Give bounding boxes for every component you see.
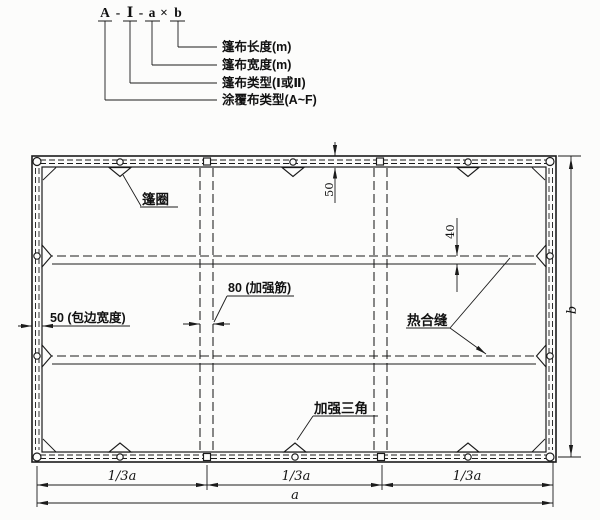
seam-square-icon	[204, 158, 211, 165]
tarp-ring-icon	[117, 454, 123, 460]
seam-square-icon	[204, 454, 211, 461]
corner-grommet-icon	[546, 453, 554, 461]
designation-times-symbol: ×	[160, 5, 168, 20]
annotations: 篷圈 50 40 50 (包边宽度) 80 (加强筋) 热合缝 加强三角	[18, 142, 510, 440]
tarp-ring-icon	[292, 454, 298, 460]
height-dim-value: b	[565, 306, 580, 314]
callout-width-label: 篷布宽度(m)	[222, 57, 291, 72]
reinforcement-triangle-icon	[42, 345, 52, 367]
reinforcement-triangle-icon	[284, 443, 306, 452]
tarp-ring-icon	[34, 253, 40, 259]
seam-overlap-dim-value: 40	[443, 224, 457, 239]
designation-separator: -	[139, 5, 144, 20]
edge-fittings	[33, 158, 554, 462]
designation-separator: -	[116, 5, 121, 20]
third-dim-value: 1/3a	[282, 469, 311, 484]
seam-lines	[44, 168, 544, 452]
corner-grommet-icon	[546, 158, 554, 166]
corner-grommet-icon	[33, 453, 41, 461]
third-dim-value: 1/3a	[108, 469, 137, 484]
length-dim-value: a	[291, 488, 299, 503]
designation-block: A - Ⅰ - a × b 篷布长度(m) 篷布宽度(m) 篷布类型(Ⅰ或Ⅱ) …	[98, 5, 317, 107]
inner-border	[42, 167, 546, 452]
designation-tarp-type: Ⅰ	[127, 5, 133, 20]
designation-length-symbol: b	[174, 5, 182, 20]
callout-type-label: 篷布类型(Ⅰ或Ⅱ)	[222, 75, 306, 90]
tarp-ring-icon	[117, 159, 123, 165]
tarp-ring-icon	[465, 454, 471, 460]
designation-underlines	[98, 21, 217, 100]
triangle-label: 加强三角	[313, 400, 368, 416]
rib-label: 80 (加强筋)	[228, 280, 291, 295]
tarp-ring-icon	[547, 253, 553, 259]
reinforcement-triangle-icon	[109, 443, 131, 452]
reinforcement-triangle-icon	[537, 245, 547, 267]
triangle-leader-line	[297, 416, 378, 440]
tarp-ring-icon	[290, 159, 296, 165]
border-stitch-lines	[36, 160, 553, 459]
reinforcement-triangle-icon	[42, 245, 52, 267]
ring-label: 篷圈	[142, 191, 169, 207]
designation-fabric-type: A	[100, 5, 110, 20]
drawing-canvas: A - Ⅰ - a × b 篷布长度(m) 篷布宽度(m) 篷布类型(Ⅰ或Ⅱ) …	[0, 0, 600, 520]
seam-square-icon	[378, 454, 385, 461]
reinforcement-triangle-icon	[457, 168, 479, 177]
heat-seam-label: 热合缝	[407, 312, 448, 328]
reinforcement-triangle-icon	[109, 168, 131, 177]
tarpaulin-outline	[32, 156, 556, 462]
corner-reinforcement-marks	[43, 168, 545, 453]
tarp-ring-icon	[34, 353, 40, 359]
callout-fabric-label: 涂覆布类型(A~F)	[222, 92, 317, 107]
reinforcement-triangle-icon	[537, 345, 547, 367]
seam-square-icon	[377, 158, 384, 165]
callout-length-label: 篷布长度(m)	[222, 39, 291, 54]
border-width-dim-value: 50	[322, 182, 336, 197]
corner-grommet-icon	[33, 158, 41, 166]
tarpaulin-spec-diagram: A - Ⅰ - a × b 篷布长度(m) 篷布宽度(m) 篷布类型(Ⅰ或Ⅱ) …	[0, 0, 600, 520]
tarp-ring-icon	[547, 353, 553, 359]
hem-width-label: 50 (包边宽度)	[50, 310, 126, 325]
third-dim-value: 1/3a	[453, 469, 482, 484]
reinforcement-triangle-icon	[457, 443, 479, 452]
reinforcement-triangle-icon	[282, 168, 304, 177]
tarp-ring-icon	[465, 159, 471, 165]
designation-width-symbol: a	[149, 5, 156, 20]
outer-border	[32, 156, 556, 462]
